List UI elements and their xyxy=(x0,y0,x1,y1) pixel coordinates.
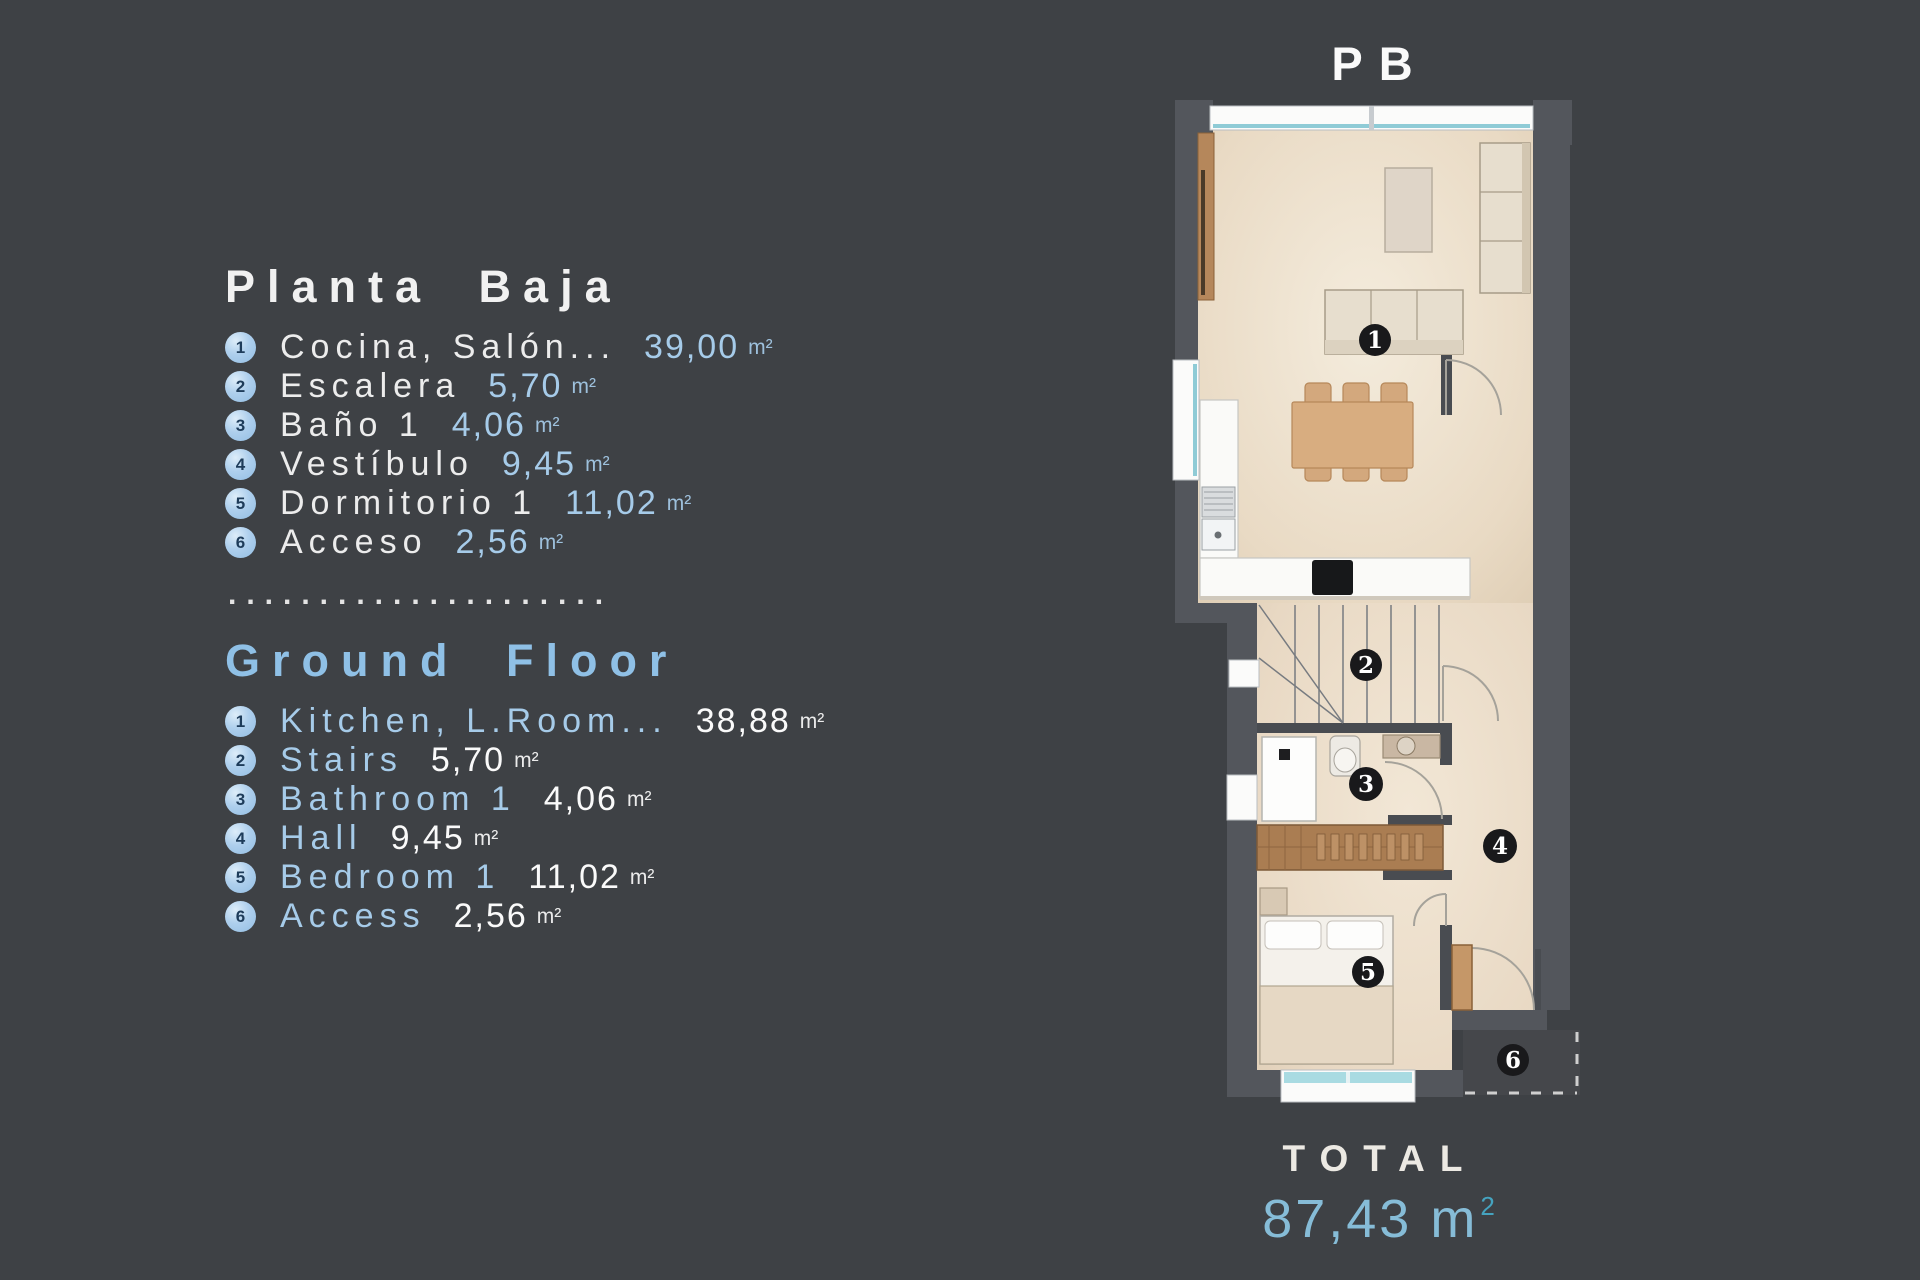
bed xyxy=(1260,916,1393,1064)
svg-text:4: 4 xyxy=(1492,833,1508,860)
legend-spanish: Planta Baja 1 Cocina, Salón... 39,00 m² … xyxy=(225,262,773,562)
entry-door-leaf xyxy=(1452,945,1472,1010)
tall-door-panel xyxy=(1198,133,1214,300)
total-value: 87,43 m2 xyxy=(1165,1188,1595,1250)
legend-row: 1 Cocina, Salón... 39,00 m² xyxy=(225,328,773,367)
room-area-unit: m² xyxy=(585,453,610,477)
stair-window xyxy=(1229,660,1259,687)
room-marker-2: 2 xyxy=(1350,649,1382,681)
room-marker-6: 6 xyxy=(1497,1044,1529,1076)
svg-text:2: 2 xyxy=(1358,652,1374,679)
kitchen-sink xyxy=(1202,487,1235,550)
legend-row: 6 Access 2,56 m² xyxy=(225,897,824,936)
dotted-separator: ..................... xyxy=(228,578,613,612)
room-area-unit: m² xyxy=(571,375,596,399)
legend-list-es: 1 Cocina, Salón... 39,00 m² 2 Escalera 5… xyxy=(225,328,773,562)
room-label: Stairs xyxy=(280,741,403,780)
room-area-unit: m² xyxy=(748,336,773,360)
dining-table xyxy=(1292,402,1413,468)
room-area-value: 9,45 xyxy=(391,819,465,858)
room-label: Cocina, Salón... xyxy=(280,328,616,367)
room-area-unit: m² xyxy=(514,749,539,773)
wardrobe xyxy=(1257,825,1443,870)
item-number-badge: 3 xyxy=(225,410,256,441)
legend-title-en: Ground Floor xyxy=(225,636,824,686)
legend-row: 2 Stairs 5,70 m² xyxy=(225,741,824,780)
legend-row: 4 Vestíbulo 9,45 m² xyxy=(225,445,773,484)
blanket xyxy=(1260,986,1393,1064)
room-area-value: 9,45 xyxy=(502,445,576,484)
cooktop xyxy=(1312,560,1353,595)
legend-list-en: 1 Kitchen, L.Room... 38,88 m² 2 Stairs 5… xyxy=(225,702,824,936)
room-marker-4: 4 xyxy=(1483,829,1517,863)
item-number-badge: 4 xyxy=(225,823,256,854)
room-label: Dormitorio 1 xyxy=(280,484,537,523)
room-area-unit: m² xyxy=(537,905,562,929)
room-area-unit: m² xyxy=(630,866,655,890)
legend-row: 5 Bedroom 1 11,02 m² xyxy=(225,858,824,897)
room-area-unit: m² xyxy=(800,710,825,734)
room-label: Baño 1 xyxy=(280,406,424,445)
legend-title-es: Planta Baja xyxy=(225,262,773,312)
plan-title: PB xyxy=(1165,36,1595,91)
bathroom-sink xyxy=(1383,735,1440,758)
legend-row: 3 Bathroom 1 4,06 m² xyxy=(225,780,824,819)
svg-text:1: 1 xyxy=(1367,327,1383,354)
item-number-badge: 1 xyxy=(225,332,256,363)
room-area-value: 39,00 xyxy=(644,328,739,367)
room-marker-5: 5 xyxy=(1352,956,1384,988)
room-label: Bathroom 1 xyxy=(280,780,516,819)
room-area-unit: m² xyxy=(535,414,560,438)
room-label: Vestíbulo xyxy=(280,445,474,484)
room-marker-1: 1 xyxy=(1359,324,1391,356)
item-number-badge: 2 xyxy=(225,745,256,776)
total-value-number: 87,43 m xyxy=(1262,1189,1478,1249)
coffee-table xyxy=(1385,168,1432,252)
room-label: Access xyxy=(280,897,426,936)
room-area-unit: m² xyxy=(539,531,564,555)
legend-row: 2 Escalera 5,70 m² xyxy=(225,367,773,406)
item-number-badge: 6 xyxy=(225,901,256,932)
room-label: Kitchen, L.Room... xyxy=(280,702,668,741)
svg-text:3: 3 xyxy=(1358,771,1374,798)
total-label: TOTAL xyxy=(1165,1138,1595,1180)
item-number-badge: 6 xyxy=(225,527,256,558)
sofa-center xyxy=(1325,290,1463,354)
room-area-value: 5,70 xyxy=(431,741,505,780)
room-area-value: 5,70 xyxy=(488,367,562,406)
item-number-badge: 5 xyxy=(225,862,256,893)
room-area-value: 2,56 xyxy=(454,897,528,936)
toilet xyxy=(1330,736,1360,776)
room-area-value: 11,02 xyxy=(528,858,621,897)
room-label: Bedroom 1 xyxy=(280,858,500,897)
item-number-badge: 4 xyxy=(225,449,256,480)
floor-plan: 1 2 3 4 5 6 xyxy=(1165,88,1595,1118)
legend-row: 5 Dormitorio 1 11,02 m² xyxy=(225,484,773,523)
room-area-unit: m² xyxy=(474,827,499,851)
legend-row: 3 Baño 1 4,06 m² xyxy=(225,406,773,445)
svg-text:5: 5 xyxy=(1360,959,1376,986)
nightstand xyxy=(1260,888,1287,915)
page: Planta Baja 1 Cocina, Salón... 39,00 m² … xyxy=(0,0,1920,1280)
legend-row: 1 Kitchen, L.Room... 38,88 m² xyxy=(225,702,824,741)
total-block: TOTAL 87,43 m2 xyxy=(1165,1138,1595,1250)
sofa-right xyxy=(1480,143,1530,293)
room-area-value: 38,88 xyxy=(696,702,791,741)
pillow xyxy=(1327,921,1383,949)
room-area-unit: m² xyxy=(627,788,652,812)
room-area-value: 11,02 xyxy=(565,484,658,523)
room-area-value: 4,06 xyxy=(544,780,618,819)
room-label: Acceso xyxy=(280,523,428,562)
pillow xyxy=(1265,921,1321,949)
item-number-badge: 2 xyxy=(225,371,256,402)
item-number-badge: 1 xyxy=(225,706,256,737)
bathroom-window xyxy=(1227,775,1257,820)
room-area-unit: m² xyxy=(667,492,692,516)
legend-english: Ground Floor 1 Kitchen, L.Room... 38,88 … xyxy=(225,636,824,936)
legend-row: 6 Acceso 2,56 m² xyxy=(225,523,773,562)
item-number-badge: 3 xyxy=(225,784,256,815)
room-label: Hall xyxy=(280,819,363,858)
room-marker-3: 3 xyxy=(1349,767,1383,801)
room-area-value: 4,06 xyxy=(452,406,526,445)
dining-set xyxy=(1292,383,1413,481)
total-superscript: 2 xyxy=(1480,1191,1497,1221)
item-number-badge: 5 xyxy=(225,488,256,519)
room-area-value: 2,56 xyxy=(456,523,530,562)
room-label: Escalera xyxy=(280,367,460,406)
svg-text:6: 6 xyxy=(1505,1047,1521,1074)
legend-row: 4 Hall 9,45 m² xyxy=(225,819,824,858)
